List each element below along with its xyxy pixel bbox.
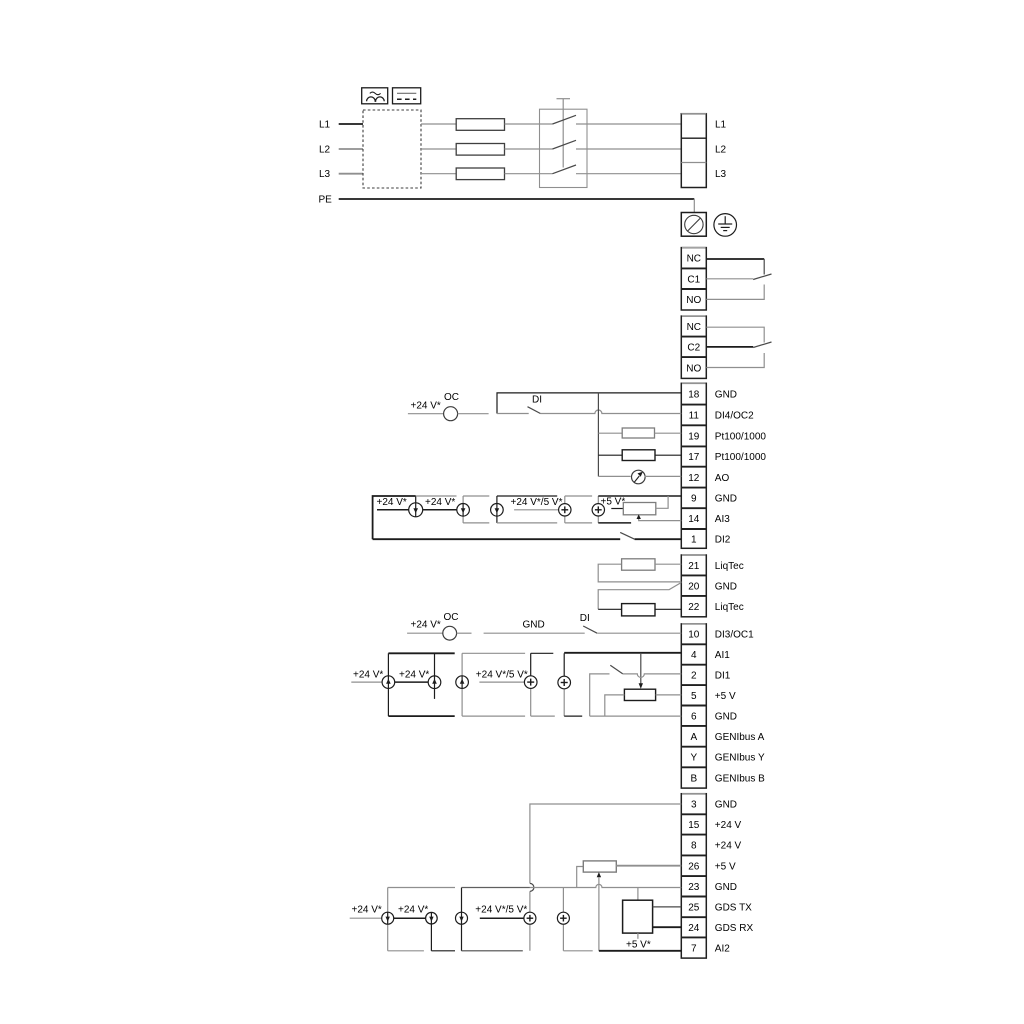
svg-text:+24 V*: +24 V*	[352, 905, 382, 916]
svg-text:NO: NO	[686, 295, 701, 306]
svg-text:DI: DI	[580, 613, 590, 624]
svg-text:Pt100/1000: Pt100/1000	[715, 432, 767, 443]
svg-text:+5 V: +5 V	[715, 691, 736, 702]
svg-text:25: 25	[688, 903, 700, 914]
svg-text:22: 22	[688, 602, 700, 613]
svg-text:GND: GND	[715, 581, 737, 592]
svg-text:DI2: DI2	[715, 534, 731, 545]
svg-text:11: 11	[689, 411, 700, 422]
svg-text:8: 8	[691, 841, 697, 852]
svg-text:+24 V*: +24 V*	[411, 401, 441, 412]
svg-text:GND: GND	[715, 800, 737, 811]
svg-text:L2: L2	[319, 145, 331, 156]
svg-text:4: 4	[691, 650, 697, 661]
svg-text:PE: PE	[319, 195, 333, 206]
svg-text:GDS TX: GDS TX	[715, 903, 752, 914]
svg-text:L2: L2	[715, 145, 727, 156]
svg-text:18: 18	[688, 390, 700, 401]
svg-text:6: 6	[691, 711, 697, 722]
svg-text:L3: L3	[715, 169, 727, 180]
svg-text:+24 V*: +24 V*	[411, 620, 441, 631]
svg-text:+24 V*/5 V*: +24 V*/5 V*	[476, 670, 528, 681]
svg-text:GND: GND	[715, 494, 737, 505]
svg-text:+24 V: +24 V	[715, 841, 742, 852]
svg-text:C1: C1	[687, 274, 700, 285]
svg-text:+24 V: +24 V	[715, 820, 742, 831]
svg-text:15: 15	[688, 820, 700, 831]
svg-text:DI1: DI1	[715, 671, 731, 682]
svg-text:7: 7	[691, 943, 697, 954]
svg-text:12: 12	[688, 473, 700, 484]
svg-text:B: B	[690, 773, 697, 784]
svg-text:OC: OC	[444, 612, 459, 623]
svg-text:GND: GND	[715, 390, 737, 401]
svg-text:NC: NC	[687, 254, 701, 265]
svg-text:GENIbus Y: GENIbus Y	[715, 753, 765, 764]
svg-text:LiqTec: LiqTec	[715, 561, 744, 572]
svg-text:AI3: AI3	[715, 514, 730, 525]
svg-text:+5 V*: +5 V*	[626, 940, 651, 951]
svg-text:Y: Y	[690, 753, 697, 764]
svg-text:14: 14	[688, 514, 700, 525]
svg-text:A: A	[690, 732, 697, 743]
svg-text:GND: GND	[715, 711, 737, 722]
svg-text:24: 24	[688, 923, 700, 934]
svg-text:+24 V*: +24 V*	[377, 497, 407, 508]
svg-text:5: 5	[691, 691, 697, 702]
svg-text:L3: L3	[319, 169, 331, 180]
svg-text:AI2: AI2	[715, 943, 730, 954]
svg-text:+24 V*/5 V*: +24 V*/5 V*	[475, 905, 527, 916]
svg-text:1: 1	[691, 534, 697, 545]
svg-text:DI3/OC1: DI3/OC1	[715, 630, 754, 641]
svg-text:GENIbus B: GENIbus B	[715, 773, 765, 784]
svg-text:GENIbus A: GENIbus A	[715, 732, 765, 743]
svg-text:Pt100/1000: Pt100/1000	[715, 452, 767, 463]
svg-text:+24 V*: +24 V*	[353, 670, 383, 681]
svg-text:C2: C2	[687, 343, 700, 354]
svg-text:9: 9	[691, 494, 697, 505]
svg-text:AO: AO	[715, 473, 730, 484]
svg-text:19: 19	[688, 432, 700, 443]
svg-text:+24 V*: +24 V*	[399, 670, 429, 681]
svg-text:+24 V*: +24 V*	[425, 497, 455, 508]
svg-text:NO: NO	[686, 364, 701, 375]
svg-text:L1: L1	[319, 120, 331, 131]
svg-text:GND: GND	[523, 620, 545, 631]
svg-text:17: 17	[688, 452, 700, 463]
svg-text:OC: OC	[444, 392, 459, 403]
svg-text:26: 26	[688, 861, 700, 872]
svg-text:DI: DI	[532, 395, 542, 406]
svg-text:3: 3	[691, 800, 697, 811]
svg-text:2: 2	[691, 671, 697, 682]
svg-text:+24 V*/5 V*: +24 V*/5 V*	[511, 497, 563, 508]
svg-text:NC: NC	[687, 322, 701, 333]
svg-text:+5 V: +5 V	[715, 861, 736, 872]
svg-text:23: 23	[688, 882, 700, 893]
svg-text:DI4/OC2: DI4/OC2	[715, 411, 754, 422]
svg-text:+5 V*: +5 V*	[601, 497, 626, 508]
svg-text:AI1: AI1	[715, 650, 730, 661]
svg-text:20: 20	[688, 581, 700, 592]
svg-text:GDS RX: GDS RX	[715, 923, 754, 934]
svg-text:L1: L1	[715, 120, 727, 131]
svg-text:+24 V*: +24 V*	[398, 905, 428, 916]
svg-text:21: 21	[688, 561, 700, 572]
svg-text:10: 10	[688, 630, 700, 641]
svg-text:LiqTec: LiqTec	[715, 602, 744, 613]
svg-text:GND: GND	[715, 882, 737, 893]
